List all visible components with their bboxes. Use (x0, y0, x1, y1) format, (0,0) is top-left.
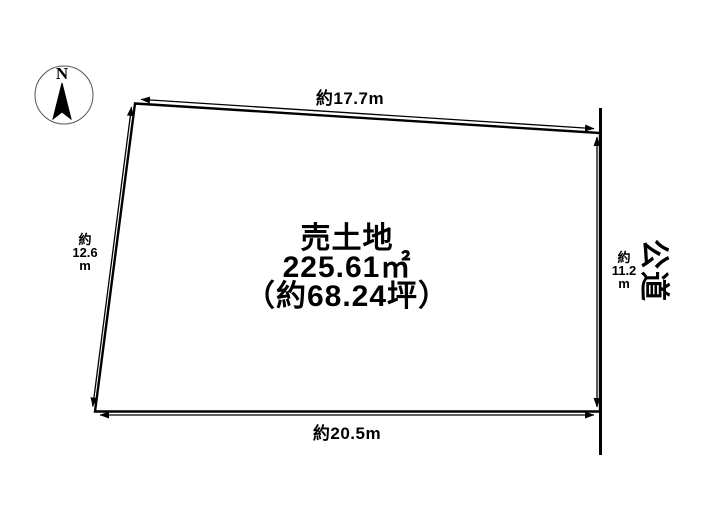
road-label: 公道 (635, 239, 679, 303)
dimension-label-bottom: 約20.5m (277, 419, 417, 444)
plot-area-tsubo: （約68.24坪） (197, 282, 497, 311)
plot-area-sqm: 225.61㎡ (197, 253, 497, 282)
land-plot-diagram: N 約17.7m 約20.5m 約 12.6 m 約 11.2 m 売土地 22… (0, 0, 705, 525)
dimension-label-left: 約 12.6 m (55, 234, 115, 272)
compass-north-label: N (50, 64, 74, 84)
plot-info: 売土地 225.61㎡ （約68.24坪） (197, 224, 497, 311)
plot-title: 売土地 (197, 224, 497, 253)
dimension-label-top: 約17.7m (280, 84, 420, 109)
